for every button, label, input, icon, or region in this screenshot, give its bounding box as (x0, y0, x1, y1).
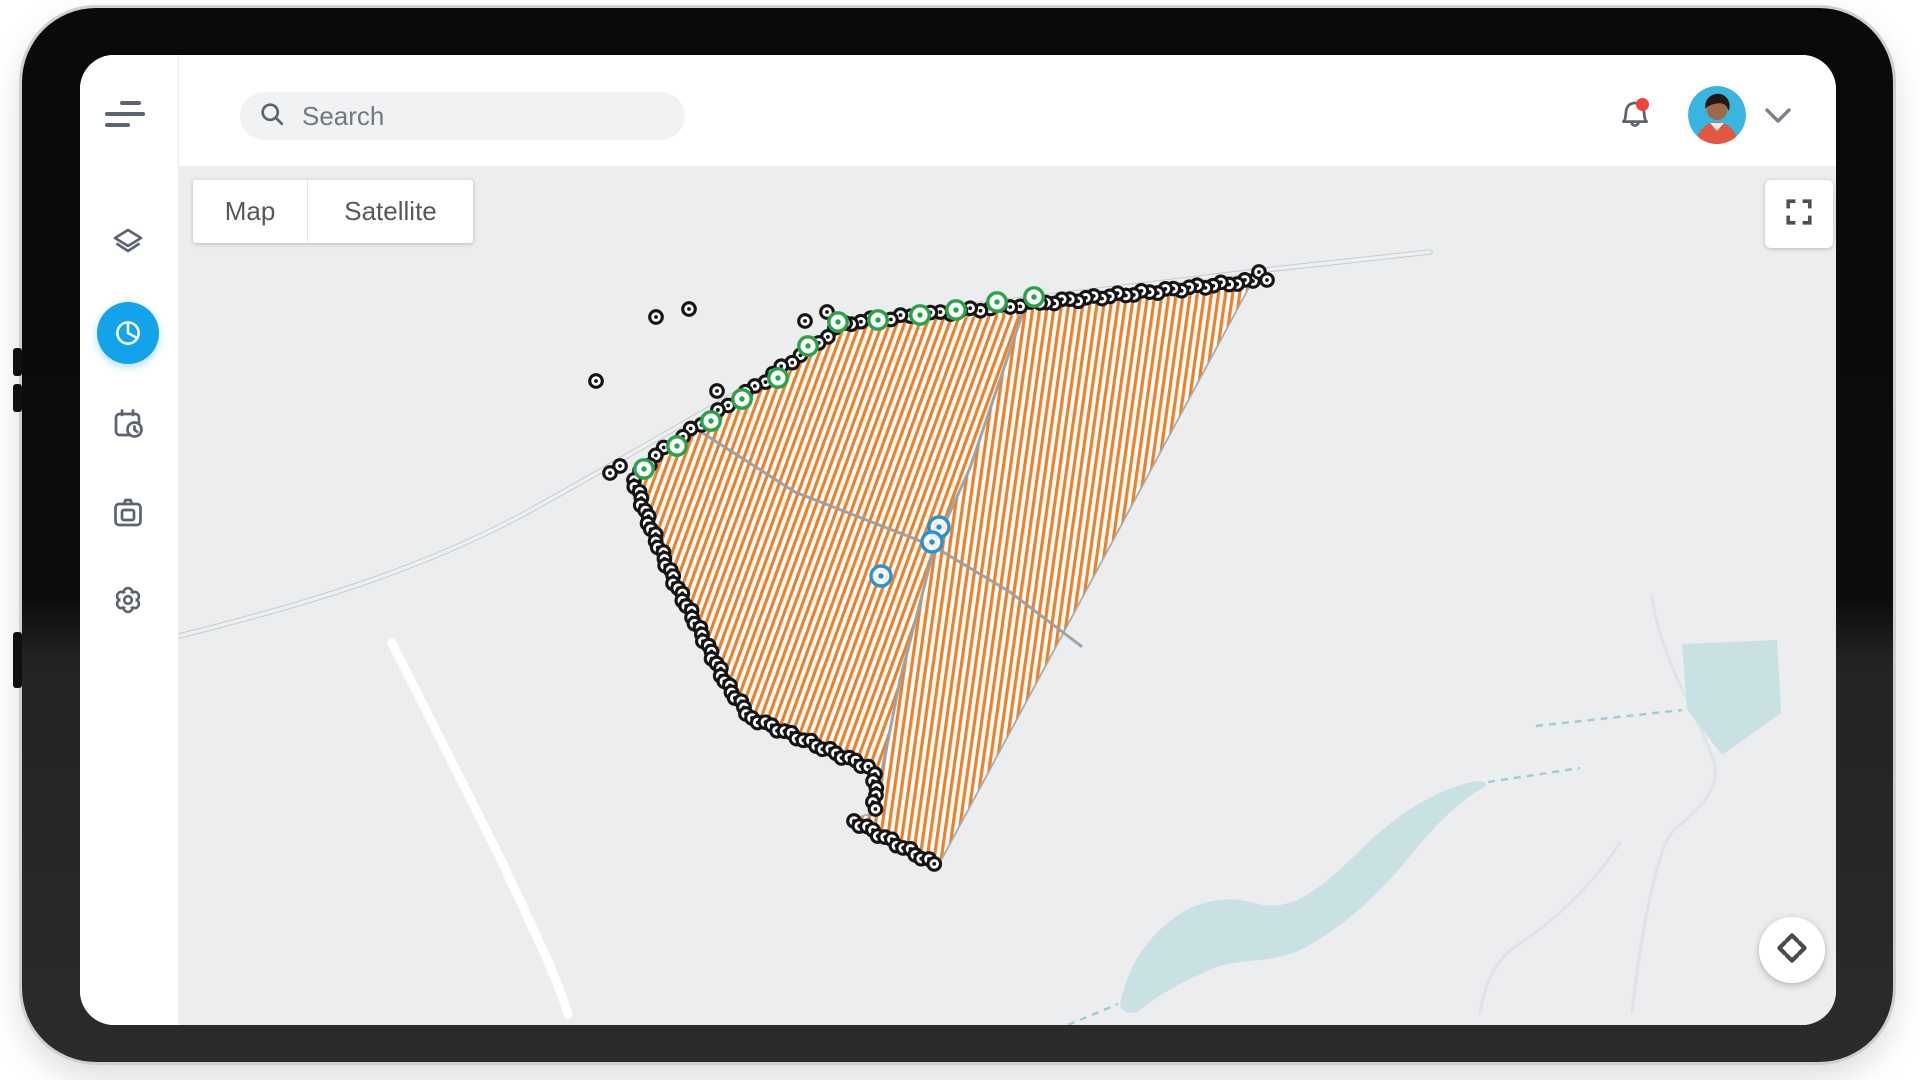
pan-control-button[interactable] (1759, 917, 1825, 983)
camera-icon (108, 493, 148, 533)
search-icon (256, 98, 288, 135)
notification-dot (1636, 98, 1649, 111)
pie-chart-icon (111, 316, 145, 350)
pan-arrows-icon (1771, 927, 1813, 974)
sidebar-item-layers[interactable] (108, 222, 148, 262)
sidebar-item-settings[interactable] (108, 580, 148, 620)
avatar-image (1688, 86, 1746, 144)
menu-icon (120, 101, 141, 105)
map-canvas[interactable] (179, 166, 1836, 1025)
volume-up-button (13, 348, 22, 376)
app-screen: Map Satellite (80, 55, 1836, 1025)
sidebar (80, 55, 179, 1025)
search-input[interactable] (300, 100, 675, 133)
search-bar[interactable] (240, 92, 685, 140)
map-type-control: Map Satellite (193, 180, 473, 243)
tablet-frame: Map Satellite (22, 8, 1893, 1062)
map-view-label: Map (225, 196, 276, 227)
user-avatar[interactable] (1688, 86, 1746, 144)
sidebar-item-schedule[interactable] (108, 404, 148, 444)
top-bar (80, 55, 1836, 166)
account-menu-chevron[interactable] (1760, 100, 1796, 130)
fullscreen-button[interactable] (1765, 180, 1833, 248)
satellite-view-button[interactable]: Satellite (308, 180, 473, 243)
calendar-clock-icon (108, 404, 148, 444)
map-view-button[interactable]: Map (193, 180, 308, 243)
sidebar-item-camera[interactable] (108, 493, 148, 533)
chevron-down-icon (1760, 100, 1796, 130)
sidebar-item-menu[interactable] (105, 99, 145, 133)
fullscreen-icon (1781, 194, 1817, 235)
satellite-view-label: Satellite (344, 196, 437, 227)
layers-icon (108, 222, 148, 262)
power-button (13, 632, 22, 688)
gear-icon (108, 580, 148, 620)
volume-down-button (13, 384, 22, 412)
notifications-button[interactable] (1613, 92, 1657, 136)
sidebar-item-fields[interactable] (97, 302, 159, 364)
